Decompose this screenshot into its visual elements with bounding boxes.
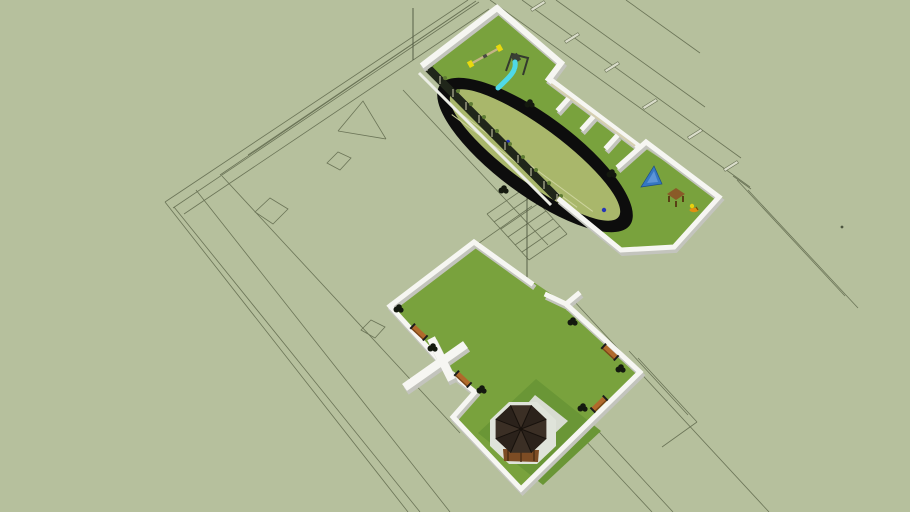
model-scene[interactable] — [0, 0, 910, 512]
gazebo — [490, 402, 556, 464]
track-marker — [602, 208, 606, 212]
gazebo-finial — [519, 427, 522, 430]
model-viewport[interactable] — [0, 0, 910, 512]
plan-speck — [841, 226, 844, 229]
gazebo-roof — [496, 405, 547, 452]
